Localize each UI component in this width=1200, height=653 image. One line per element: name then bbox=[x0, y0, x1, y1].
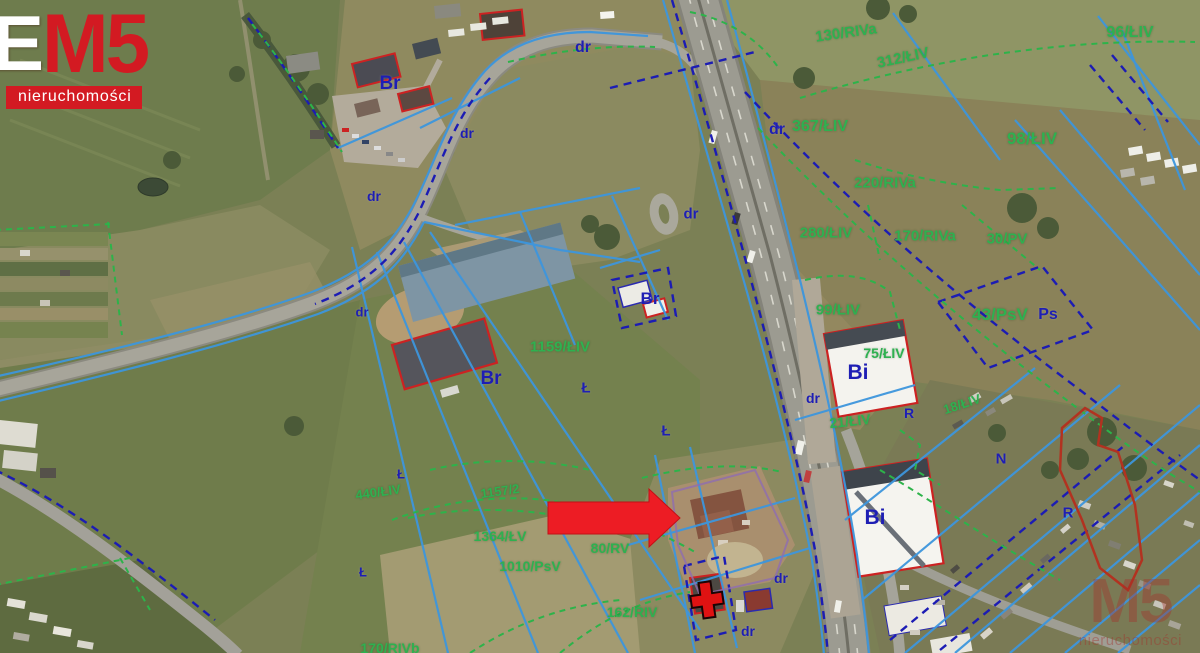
aerial-map[interactable]: 130/RIVa312/ŁIV96/ŁIV367/ŁIV98/ŁIV220/RI… bbox=[0, 0, 1200, 653]
logo-letter-e: E bbox=[0, 4, 40, 82]
satellite-layer bbox=[0, 0, 1200, 653]
warehouse-bi-1 bbox=[824, 320, 917, 417]
watermark-subtitle: nieruchomości bbox=[1079, 634, 1182, 648]
watermark-em5: M5 nieruchomości bbox=[1079, 574, 1182, 647]
watermark-m5: M5 bbox=[1079, 574, 1182, 630]
logo-letters-m5: M5 bbox=[42, 2, 147, 85]
pond bbox=[138, 178, 168, 196]
logo-em5: E M5 nieruchomości bbox=[6, 4, 147, 109]
